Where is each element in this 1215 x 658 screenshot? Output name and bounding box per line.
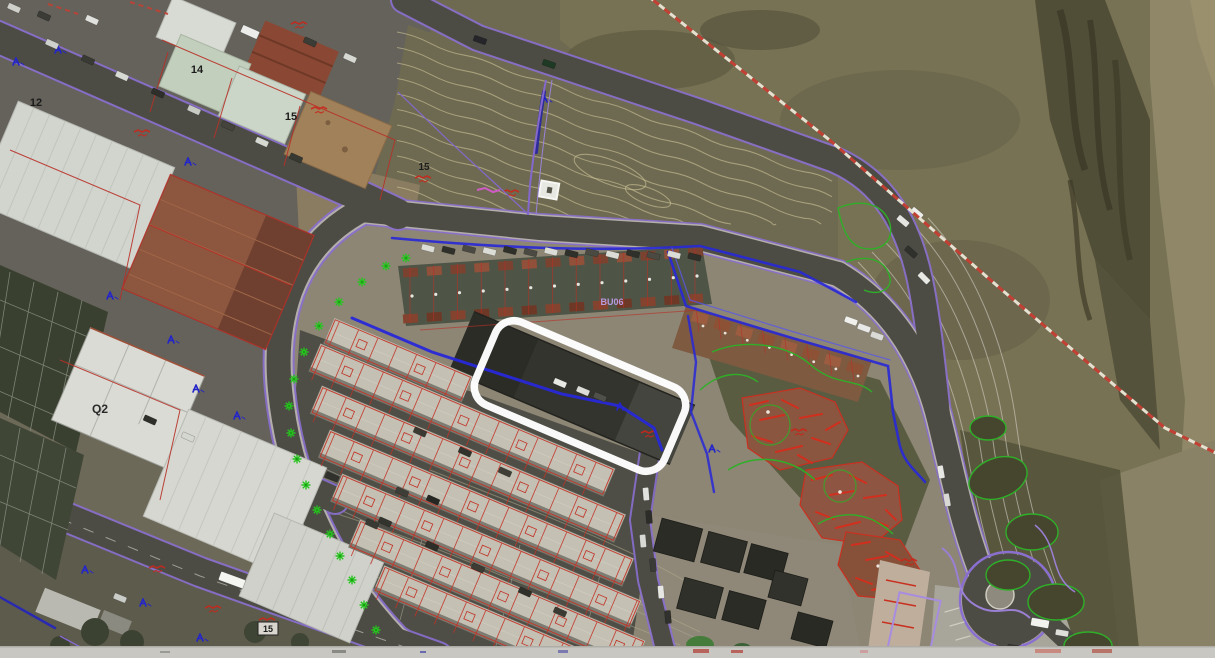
tree-marker-icon <box>360 601 369 610</box>
tree-marker-icon <box>313 506 322 515</box>
map-label: 15 <box>263 624 273 634</box>
tree-marker-icon <box>326 530 335 539</box>
tree-marker-icon <box>336 552 345 561</box>
map-label: 15 <box>418 162 430 173</box>
tree-marker-icon <box>372 626 381 635</box>
vehicle <box>649 558 656 571</box>
tree-marker-icon <box>293 455 302 464</box>
tree-marker-icon <box>290 375 299 384</box>
map-viewport[interactable]: 12141515Q215BU06 <box>0 0 1215 658</box>
vehicle <box>664 610 671 623</box>
map-label: 15 <box>285 111 297 123</box>
tree-marker-icon <box>287 429 296 438</box>
vehicle <box>642 487 649 500</box>
map-label: Q2 <box>92 402 108 416</box>
tree-marker-icon <box>300 348 309 357</box>
tree-marker-icon <box>302 481 311 490</box>
tree-marker-icon <box>285 402 294 411</box>
vehicle <box>639 534 646 547</box>
photo-edge-strip <box>0 646 1215 658</box>
vehicle <box>645 510 652 523</box>
vehicle <box>657 585 664 598</box>
tree-marker-icon <box>402 254 411 263</box>
map-label: BU06 <box>600 297 623 307</box>
map-label: 12 <box>30 97 42 109</box>
tree-marker-icon <box>315 322 324 331</box>
tree-marker-icon <box>335 298 344 307</box>
aerial-map[interactable]: 12141515Q215BU06 <box>0 0 1215 658</box>
tree-marker-icon <box>348 576 357 585</box>
tree-marker-icon <box>382 262 391 271</box>
tree-marker-icon <box>358 278 367 287</box>
map-label: 14 <box>191 64 204 76</box>
